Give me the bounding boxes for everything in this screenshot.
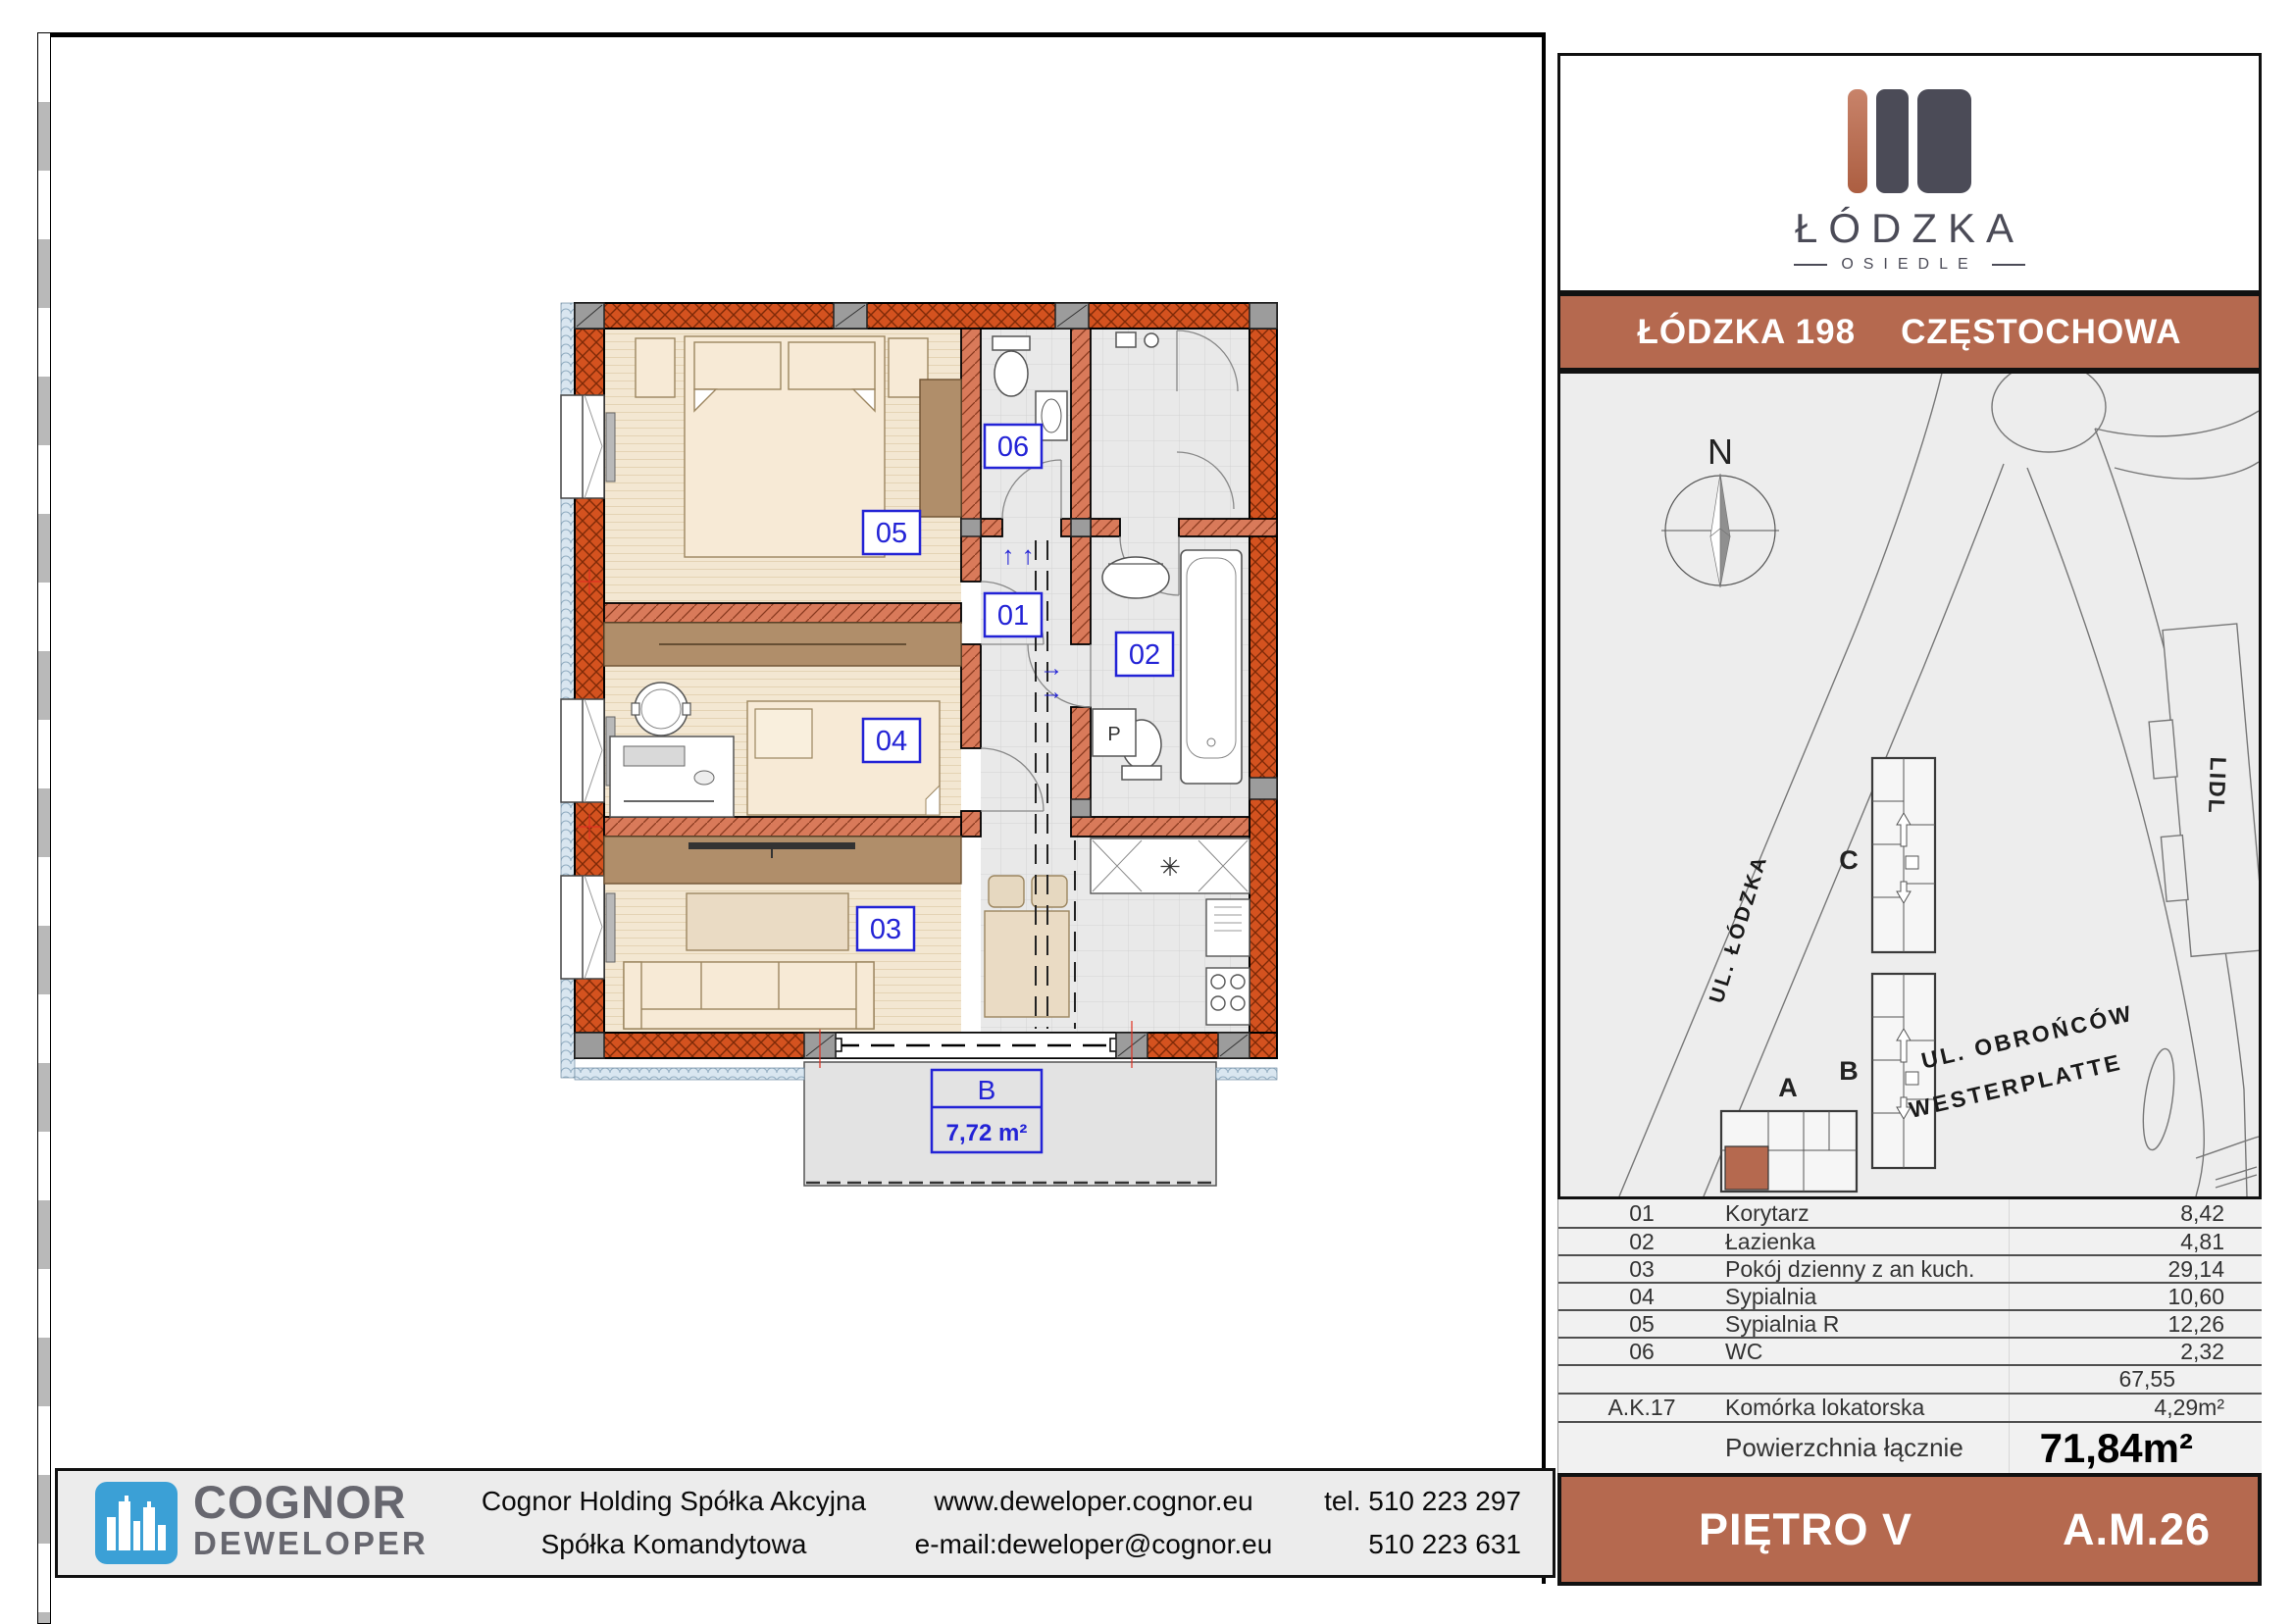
room-name: Pokój dzienny z an kuch.	[1725, 1256, 2009, 1283]
floor-plan-drawing: B 7,72 m²	[541, 287, 1297, 1219]
kitchen-sink-glyph: ✳	[1159, 852, 1181, 882]
contact-web: www.deweloper.cognor.eu e-mail:deweloper…	[897, 1471, 1290, 1575]
door-arrow: →	[1040, 679, 1063, 705]
room-name: Sypialnia R	[1725, 1311, 2009, 1338]
room-number: 06	[1558, 1339, 1725, 1365]
header-city: CZĘSTOCHOWA	[1901, 313, 2181, 352]
room-label-03: 03	[870, 914, 901, 945]
room-number: 05	[1558, 1311, 1725, 1338]
lidl-label: LIDL	[2204, 756, 2231, 815]
logo-subtitle-text: OSIEDLE	[1841, 256, 1977, 274]
table-row: 05 Sypialnia R 12,26	[1558, 1309, 2262, 1337]
company-line-1: Cognor Holding Spółka Akcyjna	[458, 1486, 890, 1517]
room-number: 02	[1558, 1229, 1725, 1255]
unit-label: A.M.26	[2063, 1504, 2211, 1555]
area-table: 01 Korytarz 8,42 02 Łazienka 4,81 03 Pok…	[1557, 1199, 2262, 1473]
floor-label: PIĘTRO V	[1699, 1504, 1912, 1555]
cognor-role: DEWELOPER	[193, 1527, 429, 1559]
storage-area: 4,29m²	[2009, 1395, 2262, 1421]
total-label: Powierzchnia łącznie	[1725, 1433, 2009, 1463]
company-line-2: Spółka Komandytowa	[458, 1529, 890, 1560]
room-label-02: 02	[1129, 639, 1160, 671]
storage-number: A.K.17	[1558, 1395, 1725, 1421]
cognor-logo-icon	[95, 1482, 178, 1569]
stairs-arrows: ↑ ↑	[1001, 540, 1034, 570]
balcony: B 7,72 m²	[804, 1062, 1216, 1186]
room-name: Korytarz	[1725, 1200, 2009, 1227]
room-area: 8,42	[2009, 1199, 2262, 1227]
table-row-total: Powierzchnia łącznie 71,84m²	[1558, 1421, 2262, 1473]
table-row-subtotal: 67,55	[1558, 1364, 2262, 1393]
room-label-06: 06	[997, 431, 1029, 463]
room-number: 04	[1558, 1284, 1725, 1310]
logo-subtitle: OSIEDLE	[1794, 256, 2024, 274]
table-row: 02 Łazienka 4,81	[1558, 1227, 2262, 1254]
site-map-drawing: N LIDL C B A UL. ŁÓD	[1560, 374, 2259, 1196]
highlighted-unit	[1725, 1146, 1768, 1190]
room-label-04: 04	[876, 726, 907, 757]
site-map: N LIDL C B A UL. ŁÓD	[1557, 371, 2262, 1199]
table-row: 03 Pokój dzienny z an kuch. 29,14	[1558, 1254, 2262, 1282]
building-b-label: B	[1839, 1056, 1859, 1086]
building-a-label: A	[1778, 1073, 1798, 1102]
table-row-storage: A.K.17 Komórka lokatorska 4,29m²	[1558, 1393, 2262, 1421]
insulation-strip	[575, 1068, 804, 1080]
lodzka-logo-icon	[1848, 89, 1971, 193]
binding-strip	[37, 32, 51, 1624]
room-name: WC	[1725, 1339, 2009, 1365]
room-number: 01	[1558, 1200, 1725, 1227]
header-street: ŁÓDZKA 198	[1637, 313, 1856, 352]
website-link[interactable]: www.deweloper.cognor.eu	[897, 1486, 1290, 1517]
logo-title: ŁÓDZKA	[1795, 205, 2024, 252]
compass-n-label: N	[1708, 431, 1733, 472]
room-area: 10,60	[2009, 1284, 2262, 1309]
balcony-label: B	[978, 1075, 996, 1105]
cognor-logo-text: COGNOR DEWELOPER	[193, 1479, 429, 1559]
subtotal-area: 67,55	[2009, 1366, 2262, 1393]
total-area: 71,84m²	[2009, 1423, 2262, 1473]
cognor-name: COGNOR	[193, 1479, 429, 1525]
room-name: Łazienka	[1725, 1229, 2009, 1255]
project-header-bar: ŁÓDZKA 198 CZĘSTOCHOWA	[1557, 293, 2262, 371]
phone-2: 510 223 631	[1309, 1529, 1521, 1560]
room-area: 2,32	[2009, 1339, 2262, 1364]
insulation-strip	[1216, 1068, 1277, 1080]
phone-1: tel. 510 223 297	[1309, 1486, 1521, 1517]
email-link[interactable]: e-mail:deweloper@cognor.eu	[897, 1529, 1290, 1560]
floor-plan: B 7,72 m²	[541, 287, 1297, 1219]
room-area: 12,26	[2009, 1311, 2262, 1337]
floor-unit-bar: PIĘTRO V A.M.26	[1557, 1473, 2262, 1586]
footer: COGNOR DEWELOPER Cognor Holding Spółka A…	[55, 1468, 1555, 1578]
room-number: 03	[1558, 1256, 1725, 1283]
room-area: 29,14	[2009, 1256, 2262, 1282]
door-arrow: →	[1040, 655, 1063, 682]
room-label-05: 05	[876, 518, 907, 549]
company-info: Cognor Holding Spółka Akcyjna Spółka Kom…	[458, 1471, 890, 1575]
contact-phones: tel. 510 223 297 510 223 631	[1309, 1471, 1521, 1575]
balcony-area: 7,72 m²	[946, 1120, 1028, 1146]
table-row: 04 Sypialnia 10,60	[1558, 1282, 2262, 1309]
table-row: 06 WC 2,32	[1558, 1337, 2262, 1364]
balcony-door	[832, 1033, 1120, 1058]
table-row: 01 Korytarz 8,42	[1558, 1199, 2262, 1227]
room-name: Sypialnia	[1725, 1284, 2009, 1310]
building-c-label: C	[1839, 845, 1859, 875]
developer-logo-box: ŁÓDZKA OSIEDLE	[1557, 53, 2262, 293]
room-area: 4,81	[2009, 1229, 2262, 1254]
room-label-01: 01	[997, 600, 1029, 632]
washer-label: P	[1107, 724, 1120, 745]
storage-name: Komórka lokatorska	[1725, 1395, 2009, 1421]
